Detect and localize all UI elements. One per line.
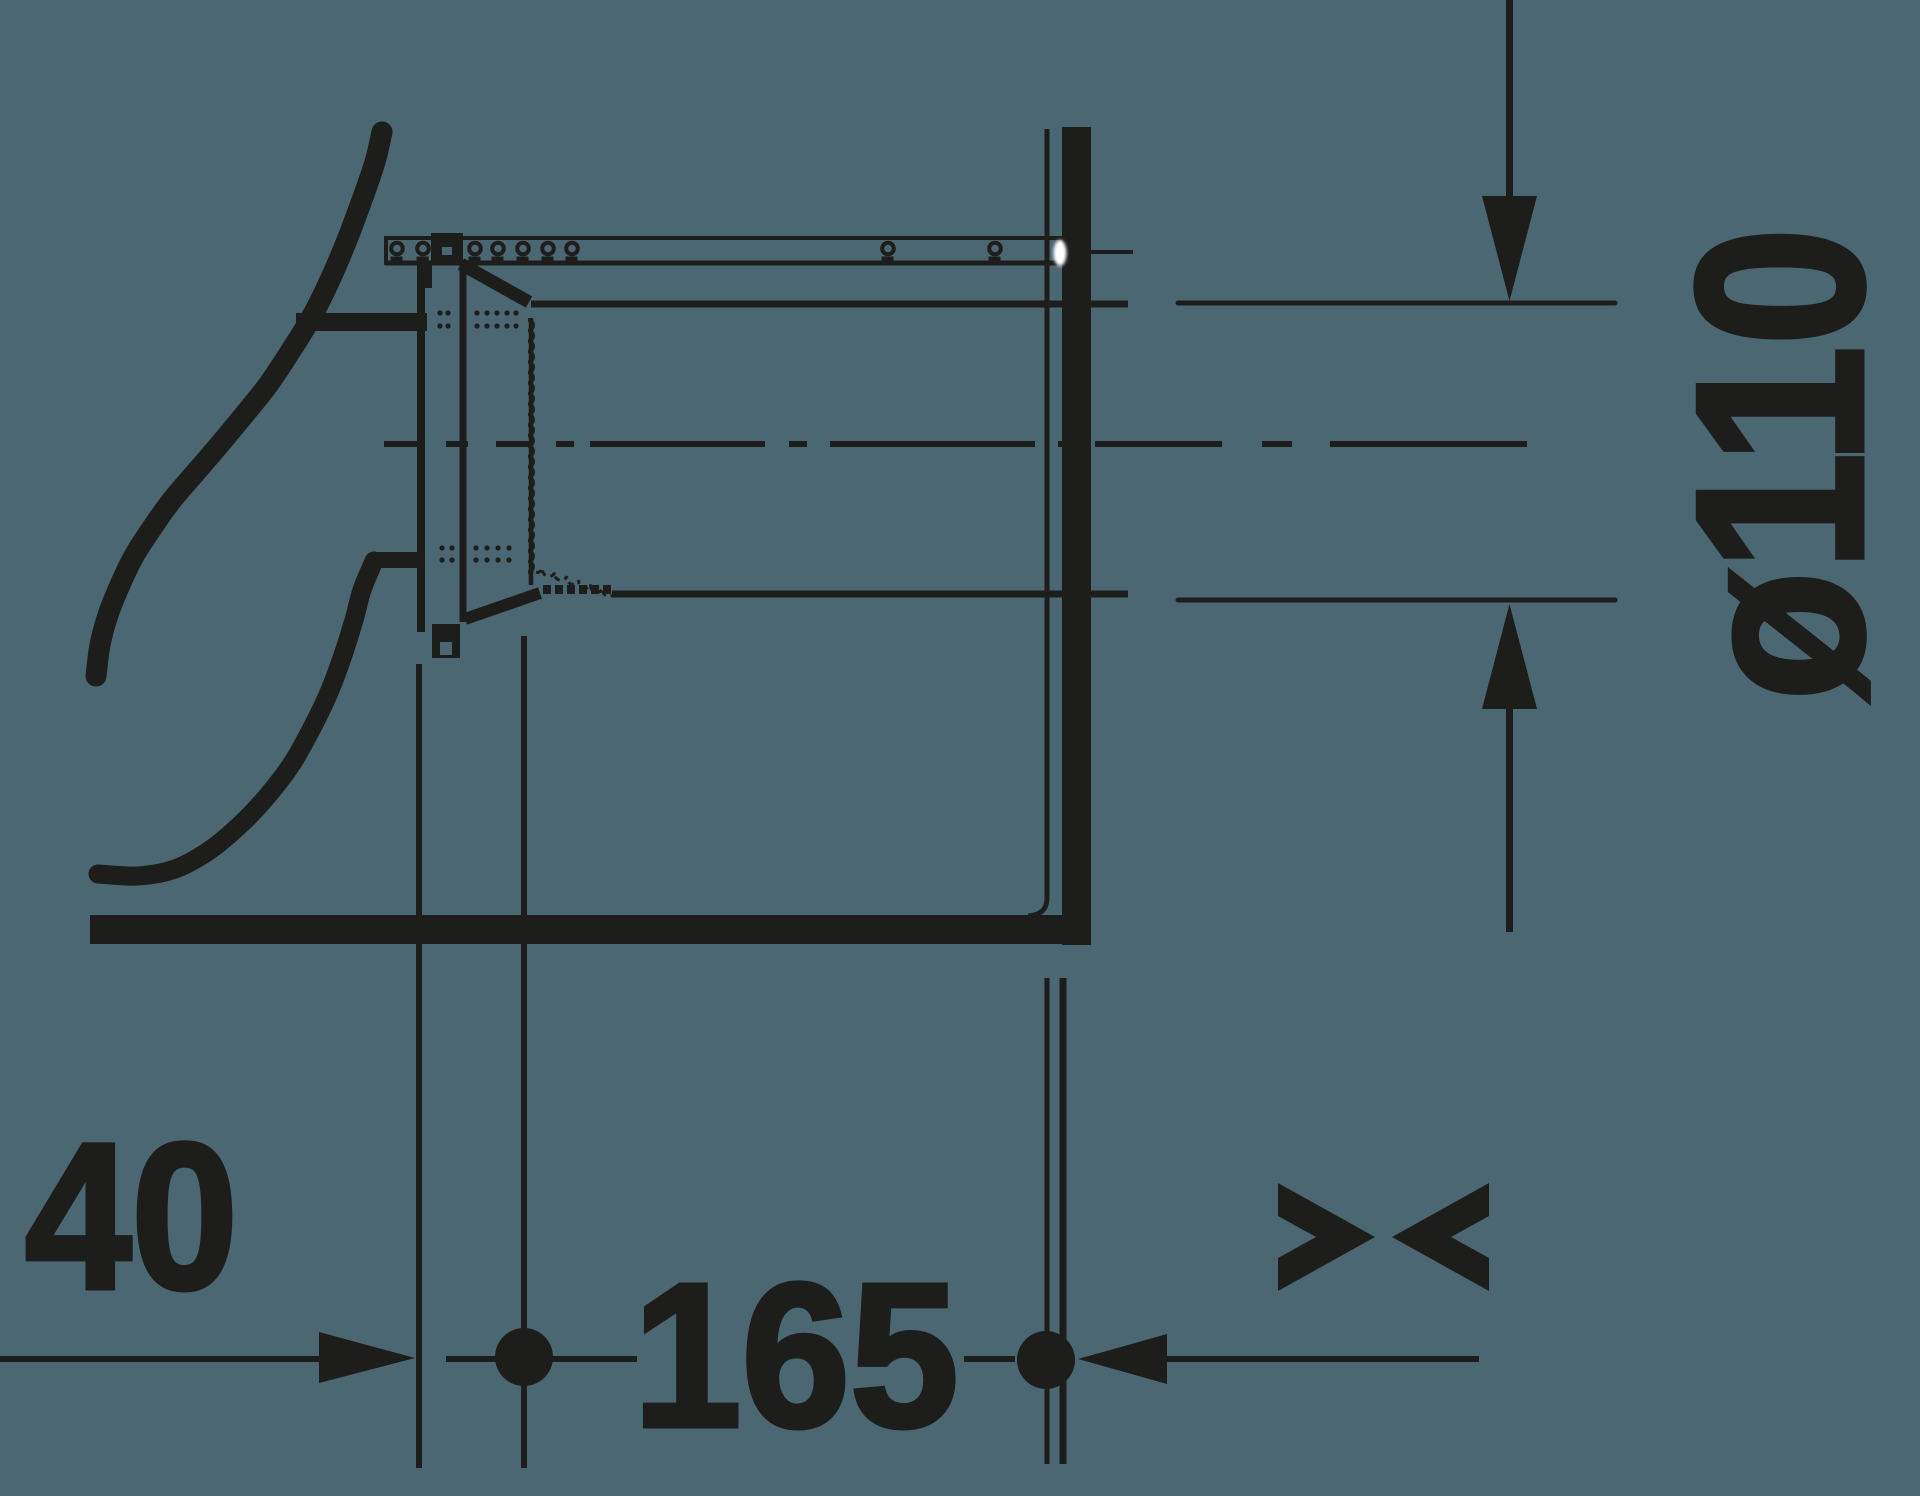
svg-text:ø110: ø110 (1647, 227, 1913, 701)
svg-text:40: 40 (25, 1101, 238, 1333)
svg-text:165: 165 (633, 1242, 959, 1470)
